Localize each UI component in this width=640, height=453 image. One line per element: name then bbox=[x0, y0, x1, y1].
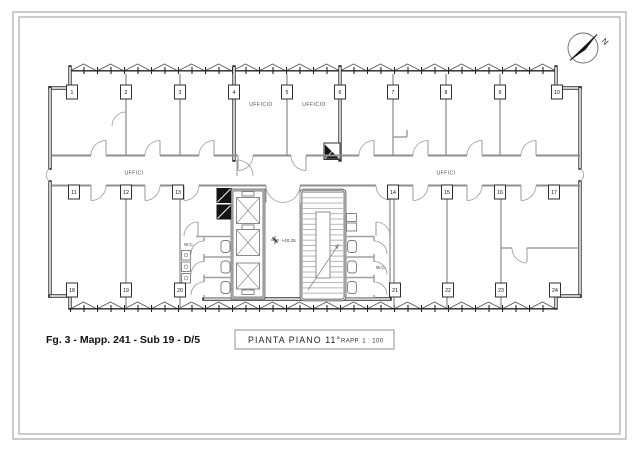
svg-text:6: 6 bbox=[339, 90, 342, 96]
room-tag-13: 13 bbox=[173, 185, 184, 199]
svg-text:10: 10 bbox=[554, 90, 560, 96]
room-tag-16: 16 bbox=[495, 185, 506, 199]
title-block: PIANTA PIANO 11° RAPP. 1 : 100 bbox=[235, 330, 394, 349]
svg-text:16: 16 bbox=[497, 190, 503, 196]
office-label-right: UFFICIO bbox=[302, 102, 326, 108]
room-tag-14: 14 bbox=[388, 185, 399, 199]
side-window-left bbox=[46, 168, 50, 182]
room-tag-11: 11 bbox=[69, 185, 80, 199]
toilet-icons-left bbox=[221, 241, 230, 294]
room-tag-1: 1 bbox=[67, 85, 78, 99]
svg-text:8: 8 bbox=[445, 90, 448, 96]
svg-text:18: 18 bbox=[69, 288, 75, 294]
svg-text:1: 1 bbox=[71, 90, 74, 96]
elevator-2 bbox=[237, 225, 260, 256]
room-tag-17: 17 bbox=[549, 185, 560, 199]
wc-left-label: W.C. bbox=[184, 242, 194, 247]
wc-left: W.C. bbox=[182, 222, 233, 298]
elevator-block bbox=[232, 190, 264, 298]
room-tag-3: 3 bbox=[175, 85, 186, 99]
sink-icons-left bbox=[182, 251, 191, 284]
room-tag-19: 19 bbox=[121, 283, 132, 297]
room-tag-15: 15 bbox=[442, 185, 453, 199]
stairs bbox=[301, 190, 345, 300]
room-tag-23: 23 bbox=[496, 283, 507, 297]
lobby-doors bbox=[266, 186, 300, 203]
svg-text:13: 13 bbox=[175, 190, 181, 196]
level-marker: +40.25 bbox=[271, 236, 296, 244]
room-tag-24: 24 bbox=[550, 283, 561, 297]
compass-icon: N bbox=[568, 33, 610, 63]
wc-right: W.C. bbox=[346, 214, 390, 299]
level-value: +40.25 bbox=[282, 238, 297, 243]
room-tag-4: 4 bbox=[229, 85, 240, 99]
window-band-bottom bbox=[70, 301, 556, 312]
svg-text:23: 23 bbox=[498, 288, 504, 294]
floor-plan-canvas: N bbox=[0, 0, 640, 453]
north-label: N bbox=[600, 36, 611, 47]
svg-text:24: 24 bbox=[552, 288, 558, 294]
svg-text:3: 3 bbox=[179, 90, 182, 96]
room-tag-18: 18 bbox=[67, 283, 78, 297]
svg-text:5: 5 bbox=[286, 90, 289, 96]
side-window-right bbox=[580, 168, 584, 182]
svg-text:20: 20 bbox=[177, 288, 183, 294]
toilet-icons-right bbox=[348, 241, 357, 294]
svg-text:12: 12 bbox=[123, 190, 129, 196]
drawing-title: PIANTA PIANO 11° bbox=[248, 335, 341, 345]
room-tag-7: 7 bbox=[388, 85, 399, 99]
drawing-scale: RAPP. 1 : 100 bbox=[341, 339, 384, 345]
wc-right-label: W.C. bbox=[376, 265, 386, 270]
sink-icons-right bbox=[347, 214, 357, 232]
svg-text:7: 7 bbox=[392, 90, 395, 96]
footer-label: Fg. 3 - Mapp. 241 - Sub 19 - D/5 bbox=[46, 334, 200, 346]
svg-text:19: 19 bbox=[123, 288, 129, 294]
room-tag-21: 21 bbox=[390, 283, 401, 297]
room-tag-22: 22 bbox=[443, 283, 454, 297]
corridor-label-right: UFFICI bbox=[436, 171, 455, 177]
core: +40.25 bbox=[204, 186, 390, 301]
room-tag-2: 2 bbox=[121, 85, 132, 99]
window-band-top bbox=[70, 63, 556, 74]
svg-text:11: 11 bbox=[71, 190, 76, 196]
room-tag-6: 6 bbox=[335, 85, 346, 99]
svg-text:17: 17 bbox=[551, 190, 557, 196]
room-tag-8: 8 bbox=[441, 85, 452, 99]
shaft-left bbox=[217, 188, 232, 220]
office-label-left: UFFICIO bbox=[249, 102, 273, 108]
room-tag-20: 20 bbox=[175, 283, 186, 297]
svg-text:2: 2 bbox=[125, 90, 128, 96]
svg-text:4: 4 bbox=[233, 90, 236, 96]
corridor-label-left: UFFICI bbox=[124, 171, 143, 177]
shaft-top bbox=[324, 143, 340, 160]
room-tag-9: 9 bbox=[495, 85, 506, 99]
svg-text:15: 15 bbox=[444, 190, 450, 196]
svg-text:9: 9 bbox=[499, 90, 502, 96]
room-tag-10: 10 bbox=[552, 85, 563, 99]
svg-text:21: 21 bbox=[392, 288, 398, 294]
svg-text:14: 14 bbox=[390, 190, 396, 196]
room-tag-12: 12 bbox=[121, 185, 132, 199]
drawing-sheet: N bbox=[0, 0, 640, 453]
svg-text:22: 22 bbox=[445, 288, 451, 294]
room-tag-5: 5 bbox=[282, 85, 293, 99]
